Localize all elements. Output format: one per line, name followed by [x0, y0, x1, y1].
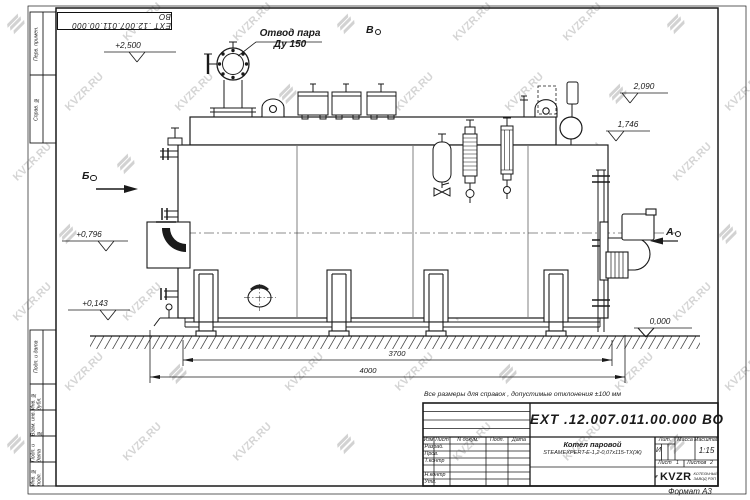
ground-line [90, 336, 700, 349]
tb-header-izm: Изм [423, 438, 434, 444]
kvzr-logo-subtext: КОТЕЛЬНЫЙ ЗАВОД РЭП [694, 472, 719, 481]
tb-scale-value: 1:15 [695, 447, 718, 455]
view-arrow-b [96, 185, 138, 193]
top-corner-stamp: ЕХТ .12.007.011.00.000 ВО [57, 12, 172, 30]
view-marker-v: В [366, 25, 381, 36]
level-1746: 1,746 [606, 120, 650, 129]
doc-number: ЕХТ .12.007.011.00.000 ВО [530, 403, 718, 437]
steam-outlet-valve [204, 42, 256, 117]
tb-masshtab-label: Масштаб [694, 438, 718, 444]
level-0796: +0,796 [58, 230, 120, 239]
kvzr-logo-text: KVZR [660, 471, 692, 483]
tb-role-nkontr: Н.контр [425, 473, 446, 479]
tb-sheets-value: 2 [710, 461, 713, 467]
reference-note: Все размеры для справок , допустимые отк… [424, 391, 714, 398]
lifting-lug-left [262, 99, 284, 117]
margin-label-vzam-inv: Взам. инв. № [30, 410, 43, 436]
tb-sheet-value: 1 [676, 461, 679, 467]
tb-sheets-label: Листов [687, 461, 706, 467]
tb-sheet-label: Лист [658, 461, 672, 467]
tb-header-data: Дата [508, 438, 530, 444]
margin-label-podp-data-2: Подп. и дата [30, 436, 43, 462]
tb-header-list: Лист [434, 438, 450, 444]
safety-valves [298, 84, 396, 119]
callout-steam-outlet: Отвод пара Ду 150 [252, 29, 328, 50]
dim-4000: 4000 [344, 367, 392, 375]
tb-header-ndokum: N докум. [450, 438, 486, 444]
level-2090: 2,090 [620, 82, 668, 91]
tb-lit-value: И [655, 447, 662, 454]
drawing-sheet: KVZR.RUKVZR.RUKVZR.RUKVZR.RUKVZR.RUKVZR.… [0, 0, 750, 500]
view-marker-a: А [666, 227, 681, 238]
format-label: Формат А3 [630, 488, 750, 496]
pressure-gauge [560, 82, 582, 145]
tb-role-tkontr: Т.контр [425, 459, 445, 465]
tb-massa-label: Масса [675, 438, 695, 444]
callout-line2: Ду 150 [252, 40, 328, 51]
view-marker-circle [375, 29, 382, 36]
margin-label-inv-dubl: Инв. № дубл. [30, 384, 43, 410]
platform-valve [520, 96, 528, 117]
level-0000: 0,000 [634, 317, 686, 326]
tb-lit-label: Лит. [655, 438, 675, 444]
tb-role-razrab: Разраб. [425, 445, 444, 451]
level-0143: +0,143 [66, 299, 124, 308]
margin-label-sprav: Справ. № [30, 75, 43, 143]
kvzr-logo-mark [655, 470, 658, 483]
tb-role-prov: Пров. [425, 452, 439, 458]
view-marker-circle [90, 175, 97, 182]
view-marker-b: Б [82, 171, 97, 182]
margin-label-inv-podl: Инв. № подл. [30, 462, 43, 486]
level-2500: +2,500 [100, 41, 156, 50]
margin-label-podp-data-1: Подп. и дата [30, 330, 43, 384]
view-marker-circle [675, 231, 682, 238]
separator-vessel [433, 142, 451, 182]
dim-3700: 3700 [373, 350, 421, 358]
kvzr-logo: KVZR КОТЕЛЬНЫЙ ЗАВОД РЭП [655, 467, 718, 486]
tb-header-podp: Подп. [486, 438, 508, 444]
drain-valve [166, 304, 172, 310]
margin-label-perv-primen: Перв. примен. [30, 12, 43, 75]
product-name: Котел паровой [530, 441, 655, 449]
product-model: STEAMEXPERT-Е-1,2-0,07х115-ТХ(Ж) [530, 451, 655, 457]
tb-role-utv: Утв. [425, 480, 437, 486]
callout-line1: Отвод пара [252, 29, 328, 40]
boiler-body [150, 117, 676, 327]
